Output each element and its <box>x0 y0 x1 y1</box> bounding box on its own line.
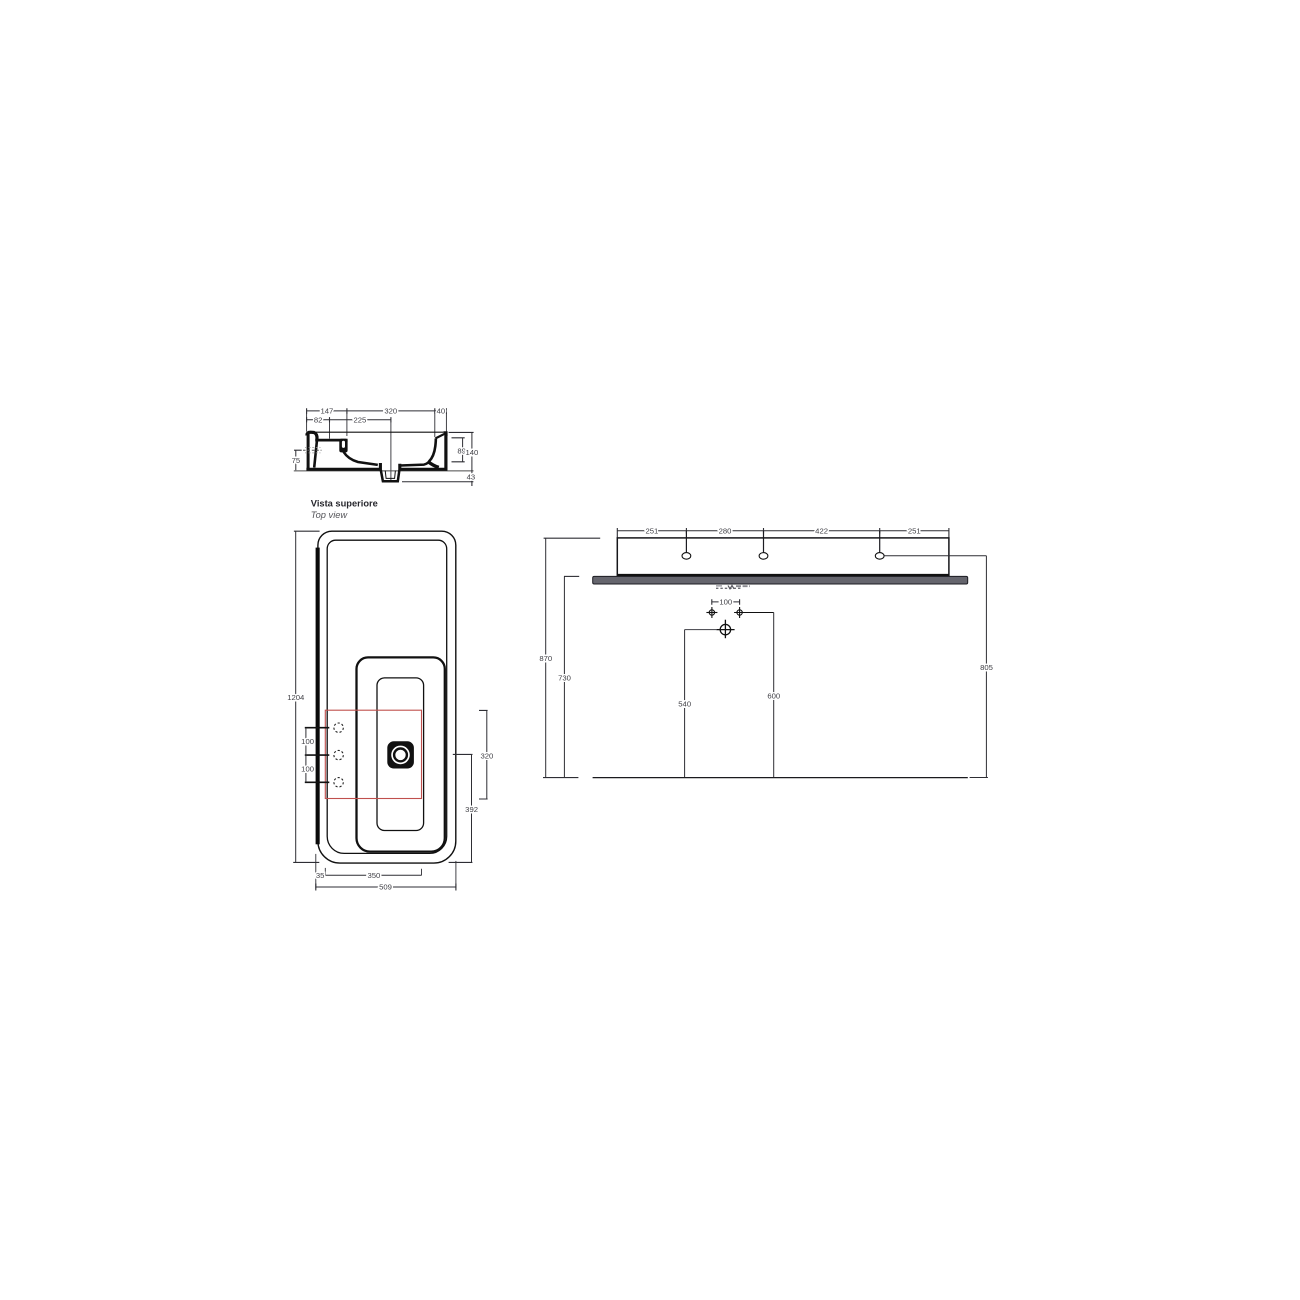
svg-text:43: 43 <box>467 472 476 481</box>
svg-text:Vista superiore: Vista superiore <box>311 499 378 509</box>
svg-text:350: 350 <box>367 871 380 880</box>
svg-text:392: 392 <box>465 805 478 814</box>
svg-text:100: 100 <box>719 598 732 607</box>
svg-text:251: 251 <box>645 526 658 535</box>
svg-text:75: 75 <box>292 456 301 465</box>
svg-text:1204: 1204 <box>287 693 305 702</box>
svg-text:251: 251 <box>908 526 921 535</box>
svg-text:540: 540 <box>678 699 691 708</box>
svg-text:320: 320 <box>480 752 493 761</box>
svg-text:509: 509 <box>379 883 392 892</box>
svg-text:140: 140 <box>465 448 478 457</box>
svg-text:805: 805 <box>980 663 993 672</box>
svg-text:82: 82 <box>314 415 323 424</box>
svg-text:Top view: Top view <box>311 510 349 520</box>
svg-text:225: 225 <box>353 415 366 424</box>
svg-text:40: 40 <box>437 407 446 416</box>
svg-text:100: 100 <box>301 765 314 774</box>
svg-text:100: 100 <box>301 737 314 746</box>
svg-text:35: 35 <box>316 871 325 880</box>
svg-text:730: 730 <box>558 673 571 682</box>
svg-text:422: 422 <box>815 526 828 535</box>
svg-text:600: 600 <box>767 691 780 700</box>
svg-text:320: 320 <box>384 407 397 416</box>
svg-text:147: 147 <box>320 407 333 416</box>
svg-text:280: 280 <box>719 526 732 535</box>
svg-text:870: 870 <box>539 654 552 663</box>
